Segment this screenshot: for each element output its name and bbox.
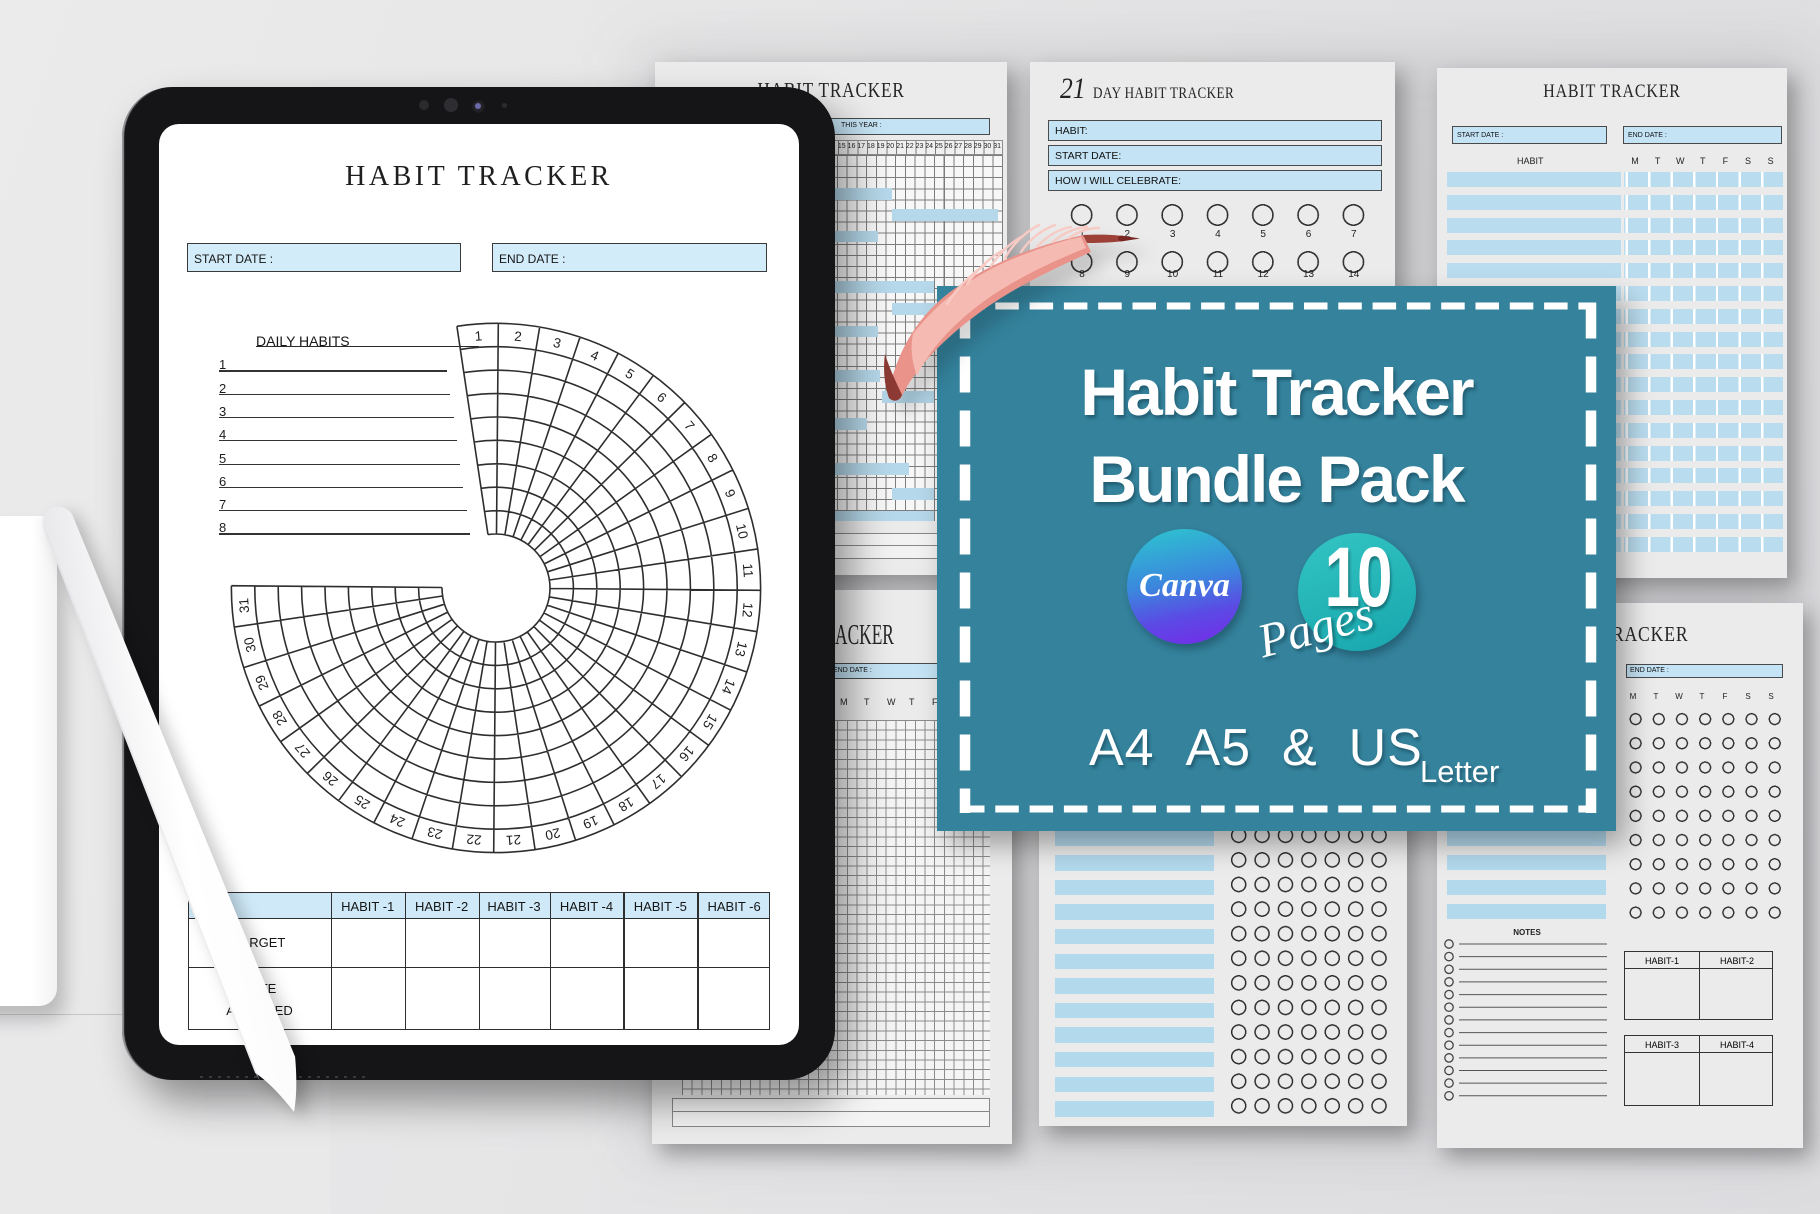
svg-text:5: 5 — [623, 366, 637, 383]
svg-text:17: 17 — [648, 771, 669, 792]
svg-text:2: 2 — [514, 329, 523, 345]
svg-text:18: 18 — [616, 794, 637, 815]
svg-text:24: 24 — [387, 810, 407, 830]
svg-text:15: 15 — [700, 711, 721, 732]
svg-text:16: 16 — [676, 743, 697, 764]
svg-text:1: 1 — [474, 328, 483, 343]
svg-text:19: 19 — [581, 812, 601, 832]
svg-text:9: 9 — [722, 487, 739, 500]
svg-text:8: 8 — [704, 451, 721, 465]
svg-text:14: 14 — [718, 677, 738, 697]
svg-text:11: 11 — [740, 563, 756, 578]
svg-text:20: 20 — [544, 825, 562, 843]
svg-text:6: 6 — [654, 389, 670, 405]
svg-text:23: 23 — [426, 824, 444, 842]
svg-text:13: 13 — [732, 640, 750, 658]
svg-text:21: 21 — [506, 832, 522, 848]
svg-text:10: 10 — [733, 522, 751, 540]
svg-text:22: 22 — [466, 831, 482, 847]
svg-text:12: 12 — [739, 602, 755, 618]
svg-text:25: 25 — [352, 792, 373, 813]
svg-text:4: 4 — [588, 347, 601, 364]
svg-text:7: 7 — [681, 418, 697, 433]
svg-text:3: 3 — [552, 335, 563, 351]
